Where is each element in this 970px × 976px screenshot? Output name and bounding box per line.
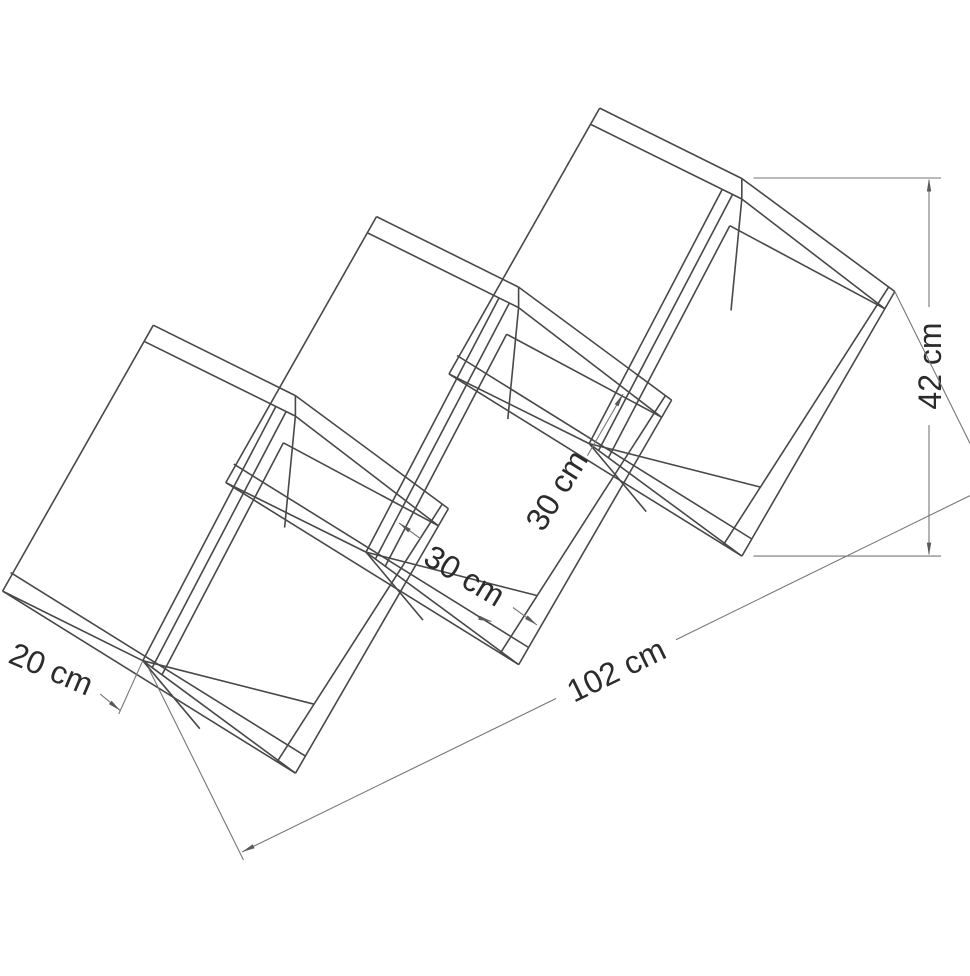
svg-text:42 cm: 42 cm [912,322,948,409]
